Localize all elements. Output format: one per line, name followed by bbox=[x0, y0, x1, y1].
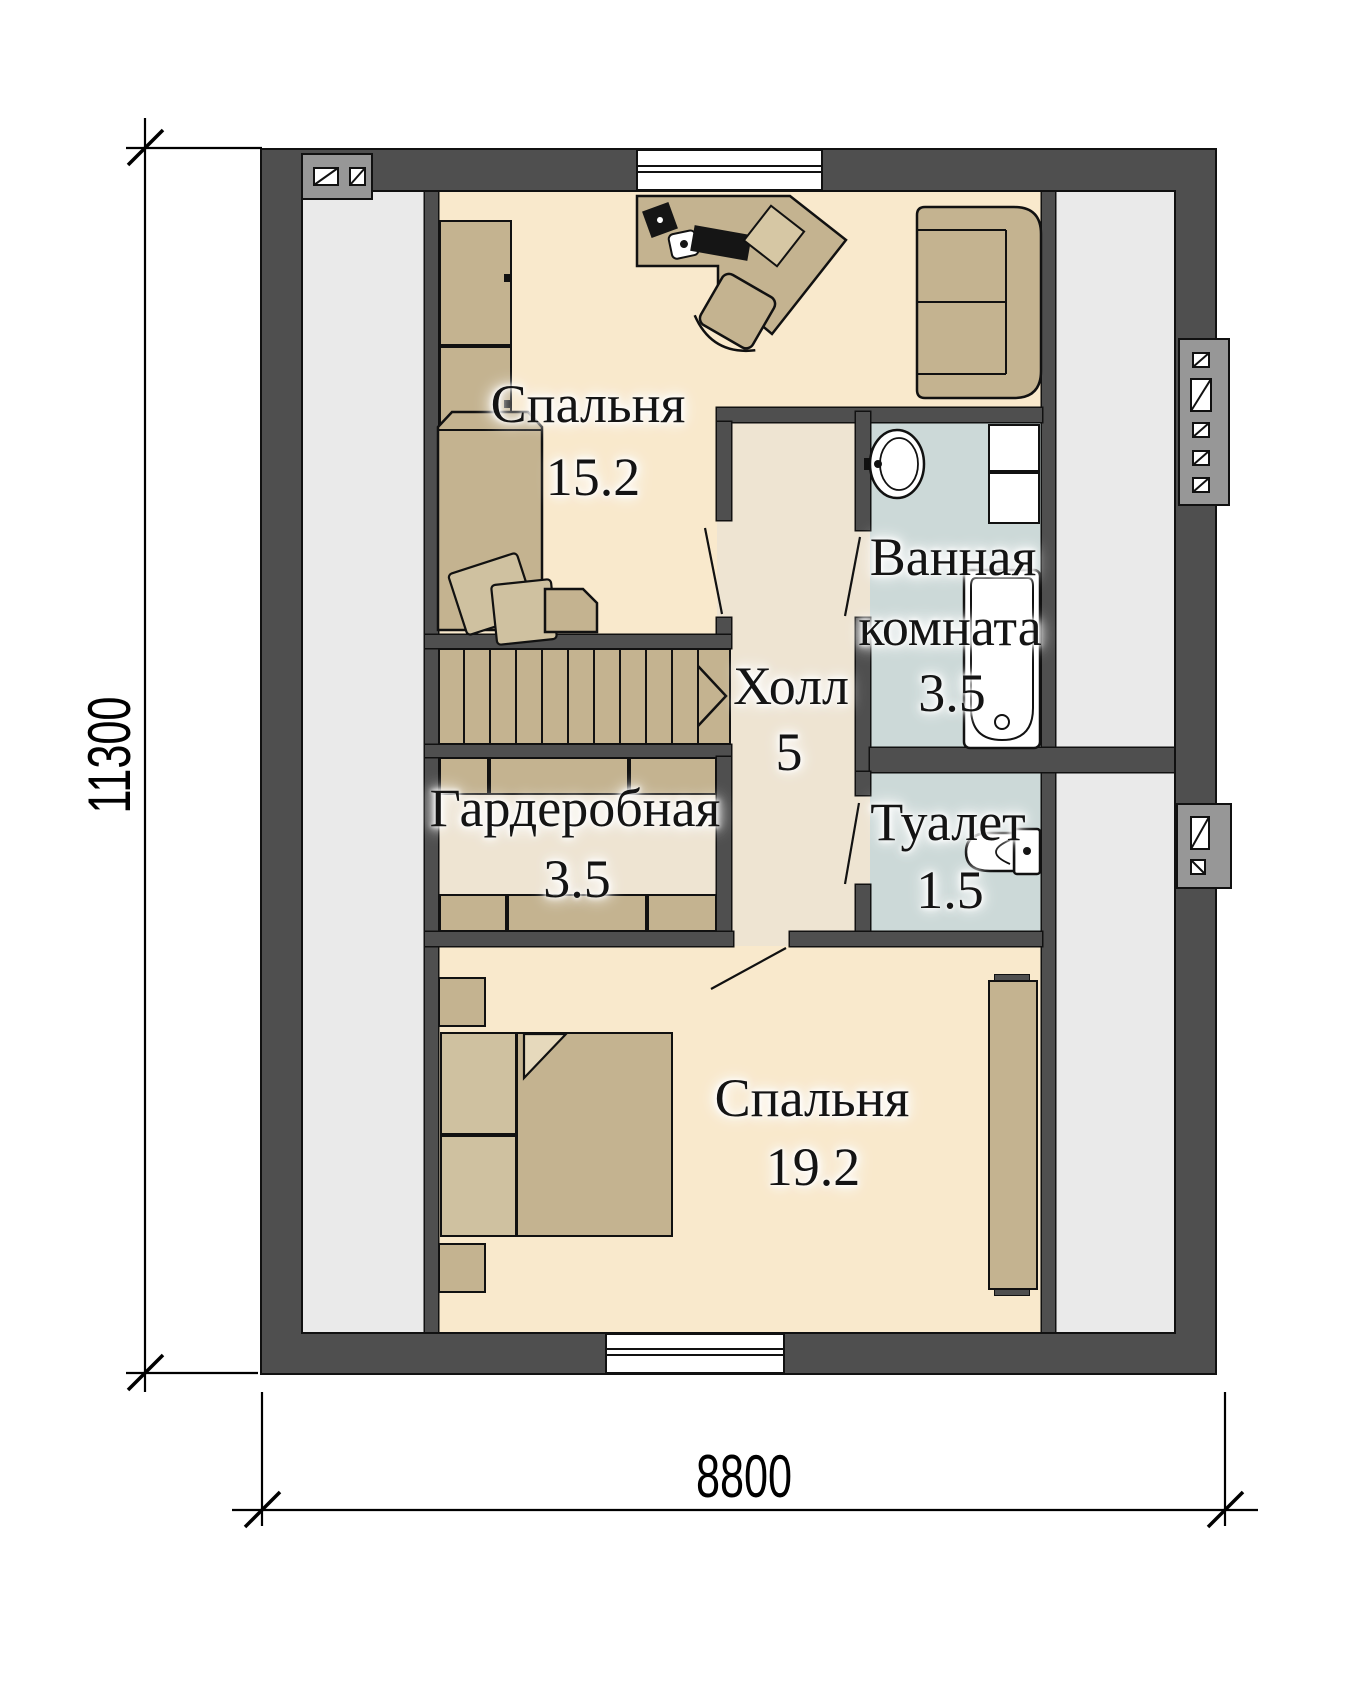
pillow-icon bbox=[440, 1135, 517, 1237]
bedroom2-area: 19.2 bbox=[766, 1140, 861, 1194]
double-bed-icon bbox=[516, 1032, 673, 1237]
vent-icon bbox=[1192, 477, 1210, 493]
bathroom-area: 3.5 bbox=[918, 666, 986, 720]
staircase bbox=[438, 648, 731, 745]
nightstand-icon bbox=[438, 1243, 486, 1293]
bedroom1-label: Спальня bbox=[491, 377, 686, 431]
washer-cabinet-icon bbox=[988, 424, 1040, 472]
wall-bathroom-toilet bbox=[870, 748, 1174, 772]
vent-icon bbox=[1190, 859, 1206, 875]
nightstand-icon bbox=[438, 977, 486, 1027]
bathroom-label-line2: комната bbox=[858, 600, 1041, 654]
wardrobe-icon bbox=[439, 220, 512, 346]
vent-icon bbox=[349, 167, 366, 186]
dresser-icon bbox=[988, 980, 1038, 1290]
floor-plan-canvas: Спальня 15.2 Ванная комната 3.5 Холл 5 Г… bbox=[0, 0, 1351, 1696]
wall-stairs-bottom bbox=[425, 745, 731, 757]
pillow-icon bbox=[440, 1032, 517, 1135]
vent-icon bbox=[313, 167, 339, 186]
bedroom1-area: 15.2 bbox=[546, 450, 641, 504]
vent-icon bbox=[1192, 450, 1210, 466]
wardrobe-label: Гардеробная bbox=[430, 781, 721, 835]
partition-left bbox=[425, 192, 438, 1332]
vent-icon bbox=[1190, 816, 1210, 850]
wall-bedroom2-top-left bbox=[425, 932, 733, 946]
bedroom2-label: Спальня bbox=[715, 1071, 910, 1125]
vent-icon bbox=[1190, 378, 1212, 412]
wardrobe-area: 3.5 bbox=[543, 852, 611, 906]
washer-cabinet-icon bbox=[988, 472, 1040, 524]
window-top bbox=[636, 149, 823, 191]
closet-icon bbox=[439, 894, 507, 932]
wall-bedroom2-top-right bbox=[790, 932, 1042, 946]
wall-toilet-left-upper bbox=[856, 772, 870, 795]
vent-icon bbox=[1192, 352, 1210, 368]
bathroom-label-line1: Ванная bbox=[870, 530, 1037, 584]
hall-area: 5 bbox=[776, 725, 803, 779]
attic-strip-left bbox=[303, 192, 425, 1332]
wall-stairs-top bbox=[425, 635, 731, 648]
vent-icon bbox=[1192, 422, 1210, 438]
dimension-height-label: 11300 bbox=[80, 697, 140, 814]
window-bottom bbox=[605, 1333, 785, 1374]
toilet-area: 1.5 bbox=[916, 863, 984, 917]
dimension-width-label: 8800 bbox=[696, 1447, 792, 1507]
wall-hall-left-upper bbox=[717, 422, 731, 520]
wall-toilet-left-lower bbox=[856, 885, 870, 932]
wall-hall-right-upper bbox=[856, 412, 870, 530]
toilet-label: Туалет bbox=[870, 795, 1026, 849]
wall-bedroom1-bathroom bbox=[717, 408, 1042, 422]
hall-label: Холл bbox=[733, 659, 849, 713]
closet-icon bbox=[647, 894, 717, 932]
